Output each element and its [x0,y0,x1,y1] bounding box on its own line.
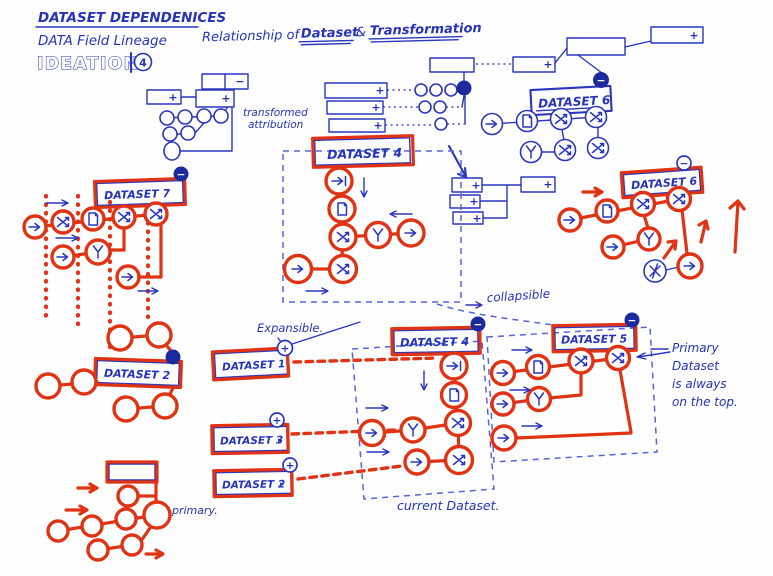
field-node [160,111,174,125]
field-node [153,394,177,418]
connector [462,95,465,124]
dashed-connector [437,304,553,325]
transform-node-arrow [285,256,312,283]
transform-node-arrowbar [441,353,467,379]
sketch-page: DATASET DEPENDENICES DATA Field Lineage … [0,0,773,576]
transform-node-split [113,206,135,228]
field-node [36,374,60,398]
expansible-note: Expansible. [257,321,323,335]
transform-node-merge [401,418,425,442]
dataset-label: DATASET 2 [222,478,285,491]
relationship-title: Relationship of Dataset & Transformation [202,21,482,47]
field-node [434,101,446,113]
relationship-transformation: Transformation [370,21,482,39]
transform-node-arrow [602,236,624,258]
field-node [419,101,431,113]
plus-icon: + [543,178,552,191]
blue-arrow-right-icon [56,235,78,241]
red-dashed-link [298,466,402,479]
field-node [116,509,136,529]
transform-node-arrow [117,266,139,288]
transform-node-doc [442,383,467,408]
field-node [163,127,177,141]
plus-icon: + [689,29,698,42]
dataset-box-inner [109,464,155,480]
transform-node-doc [596,200,618,222]
transform-node-split [569,349,593,373]
bottomleft-widget: primary. [48,462,218,560]
red-arrow-right-icon [583,188,602,196]
transform-node-arrow [24,216,46,238]
blue-arrow-right-icon [366,405,388,411]
transform-node-split [551,109,572,130]
plus-icon: + [371,101,380,114]
blue-arrow-right-icon [522,423,542,429]
transform-node-split [607,347,630,370]
red-arrow-up-icon [664,241,676,258]
transform-node-arrow [52,246,74,268]
plus-icon: + [281,343,290,355]
transform-node-doc [527,356,550,379]
dataset2-bottom-box: DATASET 2 ▸ [214,469,292,496]
field-node [88,540,108,560]
transform-node-arrow [492,426,516,450]
dataset-label: DATASET 1 [222,358,286,373]
transform-node-arrow [482,114,503,135]
blue-arrow-down-icon [421,371,427,390]
sketch-canvas: DATASET DEPENDENICES DATA Field Lineage … [0,0,773,576]
relationship-dataset: Dataset [301,25,359,42]
red-arrow-right-icon [146,550,163,558]
ideation-label: IDEATION [37,54,140,74]
triangle-icon: ▸ [278,435,282,444]
node-circle [517,111,538,132]
collapse-badge [166,350,180,364]
minus-icon: − [474,319,483,331]
node-circle [329,196,355,222]
page-subtitle: DATA Field Lineage [38,33,167,49]
dataset-label: DATASET 5 [561,332,628,346]
field-node [214,109,228,123]
transform-node-split [632,193,655,216]
minus-icon: − [628,315,637,327]
transform-node-arrowbar [326,168,352,194]
field-node [114,397,138,421]
dataset-label: DATASET 4 [327,145,403,162]
dataset5-widget: DATASET 5 − [487,313,670,462]
dataset4-bottom-box: DATASET 4 [392,327,480,355]
field-node [164,142,180,160]
page-title: DATASET DEPENDENICES [38,10,226,26]
transform-node-arrow [405,450,429,474]
field-node [82,516,102,536]
current-dataset-note: current Dataset. [397,498,499,513]
mini-box [567,38,625,55]
transform-node-doc [329,196,355,222]
field-node [197,109,211,123]
transform-node-merge [86,240,110,264]
transform-node-split [555,140,576,161]
connector [480,185,521,218]
field-node [181,126,195,140]
plus-icon: + [543,58,552,71]
minus-icon: − [597,75,606,87]
dataset-underline [299,40,353,44]
plus-icon: + [471,179,480,192]
node-circle [527,356,550,379]
dataset4-top-box: DATASET 4 [313,136,414,168]
connector [181,74,225,97]
mini-box [430,58,474,72]
node-circle [442,383,467,408]
red-connector [298,166,411,269]
field-node [435,118,447,130]
primary-dataset-note: Primary Dataset is always on the top. [651,341,738,409]
blue-arrow-right-icon [306,288,328,294]
note-line: on the top. [672,395,738,409]
header: DATASET DEPENDENICES DATA Field Lineage … [36,10,482,74]
plus-icon: + [168,91,177,104]
dataset-label: DATASET 3 [220,434,283,447]
transform-node-arrow [559,209,581,231]
plus-icon: + [375,84,384,97]
field-node [118,486,138,506]
transform-node-doc [82,208,104,230]
field-node [108,326,132,350]
note-line: is always [672,377,727,391]
node-circle [596,200,618,222]
transform-node-split [52,211,74,233]
blue-arrow-left-icon [390,211,412,217]
dataset-label: DATASET 7 [104,187,171,202]
relationship-prefix: Relationship of [202,28,302,46]
transform-node-split [330,256,357,283]
field-node [415,84,427,96]
field-node [147,323,171,347]
note-line: Dataset [672,359,720,373]
transform-node-doc [517,111,538,132]
transform-node-split [588,138,609,159]
transformed-note-line2: attribution [248,119,303,131]
mini-sketch-plusgroup: + + + + [450,177,555,225]
dataset3-box: DATASET 3 ▸ [212,424,288,453]
dataset-label: DATASET 2 [104,367,171,382]
blue-arrow-right-icon [466,302,482,308]
transform-node-split [145,203,167,225]
transform-node-split [668,188,691,211]
mini-sketch-topright: + [567,27,703,73]
excluded-node [644,260,666,282]
minus-icon: − [177,169,186,181]
collapsible-note: collapsible [486,287,550,305]
blue-arrow-right-icon [512,347,532,353]
red-dashed-link [294,358,437,362]
transformed-note-line1: transformed [243,107,308,119]
plus-icon: + [472,212,481,225]
blue-arrow-right-icon [510,387,530,393]
blue-arrow-down-icon [361,178,367,197]
transform-node-merge [528,388,551,411]
field-node [178,110,192,124]
field-node [445,84,457,96]
transform-node-split [446,447,473,474]
dataset2-left-widget: DATASET 2 [36,323,181,421]
primary-note: primary. [171,504,218,517]
relationship-amp: & [356,25,367,40]
transform-node-merge [366,223,391,248]
transform-node-merge [521,142,542,163]
field-node [430,84,442,96]
node-circle [82,208,104,230]
red-arrow-right-icon [78,484,97,492]
collapse-badge [457,81,471,95]
blue-arrow-left-icon [637,352,670,359]
transform-node-split [446,411,471,436]
dataset6-red-widget: DATASET 6 − [559,156,744,282]
blue-arrow-right-icon [46,200,68,206]
field-node [48,521,68,541]
field-node [122,535,142,555]
field-node [72,370,96,394]
transform-node-arrow [398,220,424,246]
dataset-label: DATASET 4 [400,334,469,349]
red-arrow-right-icon [66,506,87,514]
transform-node-split [330,224,356,250]
red-arrow-up-icon [699,221,708,242]
minus-icon: − [680,158,689,170]
triangle-icon: ▸ [280,479,284,488]
plus-icon: + [286,460,295,472]
plus-icon: + [373,119,382,132]
dataset-box [107,462,157,482]
transform-node-arrow [492,393,514,415]
note-line: Primary [672,341,719,355]
transform-node-arrow [360,421,385,446]
plus-icon: + [221,92,230,105]
field-node [144,502,170,528]
ideation-number: 4 [139,57,147,70]
dataset1-box: DATASET 1 [212,348,288,380]
connector [555,48,567,63]
transform-node-arrow [678,254,702,278]
transform-node-split [586,107,607,128]
red-arrow-up-icon [730,201,744,252]
transform-node-arrow [492,362,515,385]
dataset4-top-widget: DATASET 4 [283,136,461,302]
transform-node-merge [638,228,660,250]
plus-icon: + [469,195,478,208]
dataset6-blue-widget: DATASET 6 − [482,73,612,163]
blue-arrow-right-icon [367,449,389,455]
minus-icon: − [235,75,244,88]
mini-sketch-left: − + + transformed attribution [147,74,308,160]
connector [578,41,651,73]
plus-icon: + [273,415,282,427]
